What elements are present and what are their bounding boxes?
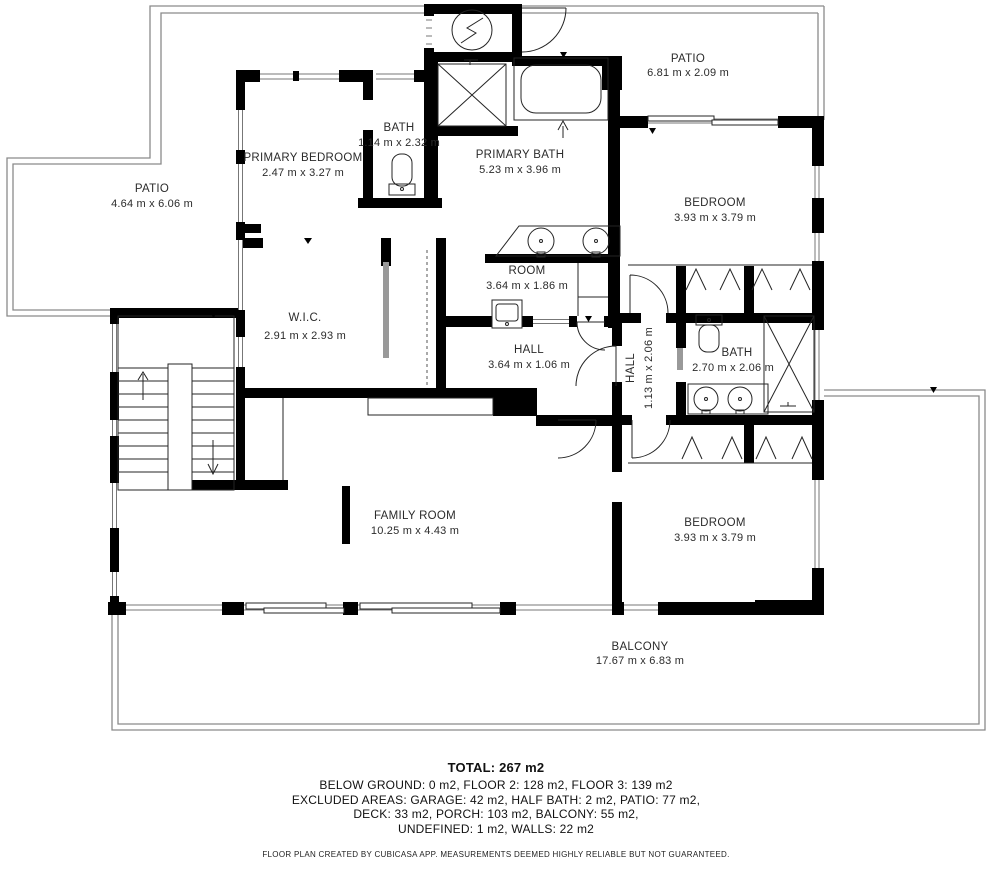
svg-text:ROOM: ROOM	[509, 265, 546, 277]
floor-plan-page: PATIO 6.81 m x 2.09 m PATIO 4.64 m x 6.0…	[0, 0, 992, 872]
room-label-wic: W.I.C. 2.91 m x 2.93 m	[264, 312, 346, 342]
room-label-hall: HALL 3.64 m x 1.06 m	[488, 344, 570, 371]
counter-family-room	[368, 398, 493, 415]
room-label-patio-left: PATIO 4.64 m x 6.06 m	[111, 183, 193, 210]
svg-text:BALCONY: BALCONY	[611, 641, 668, 653]
room-partition-lines	[578, 263, 608, 316]
summary-line-1: BELOW GROUND: 0 m2, FLOOR 2: 128 m2, FLO…	[0, 778, 992, 793]
room-label-primary-bedroom: PRIMARY BEDROOM 2.47 m x 3.27 m	[243, 152, 362, 179]
room-label-room: ROOM 3.64 m x 1.86 m	[486, 265, 568, 292]
svg-text:PRIMARY BEDROOM: PRIMARY BEDROOM	[243, 152, 362, 164]
svg-text:BEDROOM: BEDROOM	[684, 517, 746, 529]
svg-text:2.91 m x 2.93 m: 2.91 m x 2.93 m	[264, 330, 346, 342]
svg-text:1.13 m x 2.06 m: 1.13 m x 2.06 m	[643, 327, 655, 409]
svg-text:PATIO: PATIO	[135, 183, 169, 195]
room-label-patio-upper: PATIO 6.81 m x 2.09 m	[647, 53, 729, 79]
floor-plan-svg: PATIO 6.81 m x 2.09 m PATIO 4.64 m x 6.0…	[0, 0, 992, 756]
svg-text:BEDROOM: BEDROOM	[684, 197, 746, 209]
svg-text:3.93 m x 3.79 m: 3.93 m x 3.79 m	[674, 212, 756, 224]
svg-text:BATH: BATH	[721, 347, 752, 359]
sliding-door-leaf-bath2	[677, 348, 683, 370]
room-label-primary-bath: PRIMARY BATH 5.23 m x 3.96 m	[476, 149, 565, 176]
bathtub-icon	[514, 58, 608, 138]
summary-line-3: DECK: 33 m2, PORCH: 103 m2, BALCONY: 55 …	[0, 807, 992, 822]
svg-text:3.64 m x 1.86 m: 3.64 m x 1.86 m	[486, 280, 568, 292]
room-label-bedroom-lower: BEDROOM 3.93 m x 3.79 m	[674, 517, 756, 544]
svg-text:3.64 m x 1.06 m: 3.64 m x 1.06 m	[488, 359, 570, 371]
water-heater-icon	[452, 10, 492, 50]
svg-text:17.67 m x 6.83 m: 17.67 m x 6.83 m	[596, 655, 684, 667]
vanity-bath2-icon	[688, 384, 768, 414]
room-label-bedroom-upper: BEDROOM 3.93 m x 3.79 m	[674, 197, 756, 224]
svg-text:10.25 m x 4.43 m: 10.25 m x 4.43 m	[371, 525, 459, 537]
svg-text:1.14 m x 2.32 m: 1.14 m x 2.32 m	[358, 137, 440, 149]
laundry-sink-icon	[492, 300, 522, 328]
room-label-hall-vertical: HALL 1.13 m x 2.06 m	[625, 327, 655, 409]
svg-text:4.64 m x 6.06 m: 4.64 m x 6.06 m	[111, 198, 193, 210]
svg-text:2.47 m x 3.27 m: 2.47 m x 3.27 m	[262, 167, 344, 179]
svg-text:HALL: HALL	[514, 344, 544, 356]
svg-text:HALL: HALL	[625, 353, 637, 383]
shower-primary-icon	[438, 60, 506, 126]
closet-rod-bedroom1-icon	[628, 265, 812, 290]
room-label-balcony: BALCONY 17.67 m x 6.83 m	[596, 641, 684, 667]
summary-line-2: EXCLUDED AREAS: GARAGE: 42 m2, HALF BATH…	[0, 793, 992, 808]
svg-text:5.23 m x 3.96 m: 5.23 m x 3.96 m	[479, 164, 561, 176]
vanity-primary-icon	[496, 226, 620, 257]
svg-text:PRIMARY BATH: PRIMARY BATH	[476, 149, 565, 161]
sliding-door-leaf-wic	[383, 262, 389, 358]
summary-line-4: UNDEFINED: 1 m2, WALLS: 22 m2	[0, 822, 992, 837]
svg-text:PATIO: PATIO	[671, 53, 705, 65]
staircase	[118, 316, 283, 490]
svg-text:2.70 m x 2.06 m: 2.70 m x 2.06 m	[692, 362, 774, 374]
area-summary: TOTAL: 267 m2 BELOW GROUND: 0 m2, FLOOR …	[0, 760, 992, 859]
total-area: TOTAL: 267 m2	[0, 760, 992, 775]
disclaimer-text: FLOOR PLAN CREATED BY CUBICASA APP. MEAS…	[0, 850, 992, 859]
svg-text:W.I.C.: W.I.C.	[288, 312, 321, 324]
room-label-family-room: FAMILY ROOM 10.25 m x 4.43 m	[371, 510, 459, 537]
svg-text:3.93 m x 3.79 m: 3.93 m x 3.79 m	[674, 532, 756, 544]
toilet-primary-icon	[389, 154, 415, 195]
svg-text:FAMILY ROOM: FAMILY ROOM	[374, 510, 456, 522]
svg-text:BATH: BATH	[383, 122, 414, 134]
svg-text:6.81 m x 2.09 m: 6.81 m x 2.09 m	[647, 67, 729, 79]
